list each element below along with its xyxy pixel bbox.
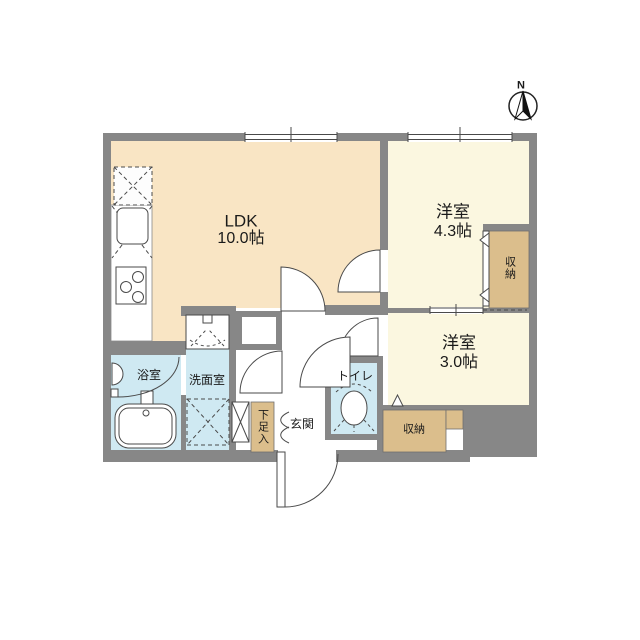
western1-area: 4.3帖 — [434, 224, 472, 240]
toilet-bowl — [341, 391, 367, 425]
washroom-label: 洗面室 — [189, 374, 225, 386]
pipe-space — [232, 402, 249, 442]
compass — [509, 91, 537, 120]
closet-bottom-step — [446, 410, 463, 429]
bathroom-label: 浴室 — [137, 369, 161, 381]
floor-plan-drawing — [0, 0, 640, 640]
bath-shower-knob — [111, 389, 118, 397]
wall-ldk-bottom — [325, 305, 388, 315]
western2-label: 洋室 — [442, 335, 476, 352]
wall-ldk-divider-upper — [380, 141, 388, 250]
wall-right — [529, 133, 537, 412]
western1-label: 洋室 — [436, 204, 470, 221]
wall-left — [103, 133, 111, 462]
compass-north-label: N — [517, 81, 525, 92]
ldk-label: LDK — [224, 213, 257, 230]
floor-plan-page: N LDK 10.0帖 洋室 4.3帖 洋室 3.0帖 浴室 洗面室 トイレ 玄… — [0, 0, 640, 640]
western2-area: 3.0帖 — [440, 355, 478, 371]
niche-interior — [242, 317, 276, 344]
ldk-area: 10.0帖 — [217, 231, 264, 247]
wall-bath-top — [103, 341, 186, 355]
entrance-door-leaf — [277, 452, 285, 507]
entrance-label: 玄関 — [290, 418, 314, 430]
wall-bath-divider — [181, 395, 186, 450]
toilet-label: トイレ — [337, 370, 373, 382]
bath-faucet — [141, 391, 153, 404]
bathtub-outer — [115, 404, 176, 448]
closet-right-label: 収納 — [504, 256, 515, 280]
closet-bottom-label: 収納 — [403, 425, 425, 436]
kitchen-sink — [117, 208, 148, 244]
kitchen — [111, 167, 152, 341]
wall-corner-mass — [463, 405, 537, 457]
wall-closet-right-top — [483, 224, 529, 231]
shoe-cabinet-label: 下足入 — [257, 409, 268, 445]
